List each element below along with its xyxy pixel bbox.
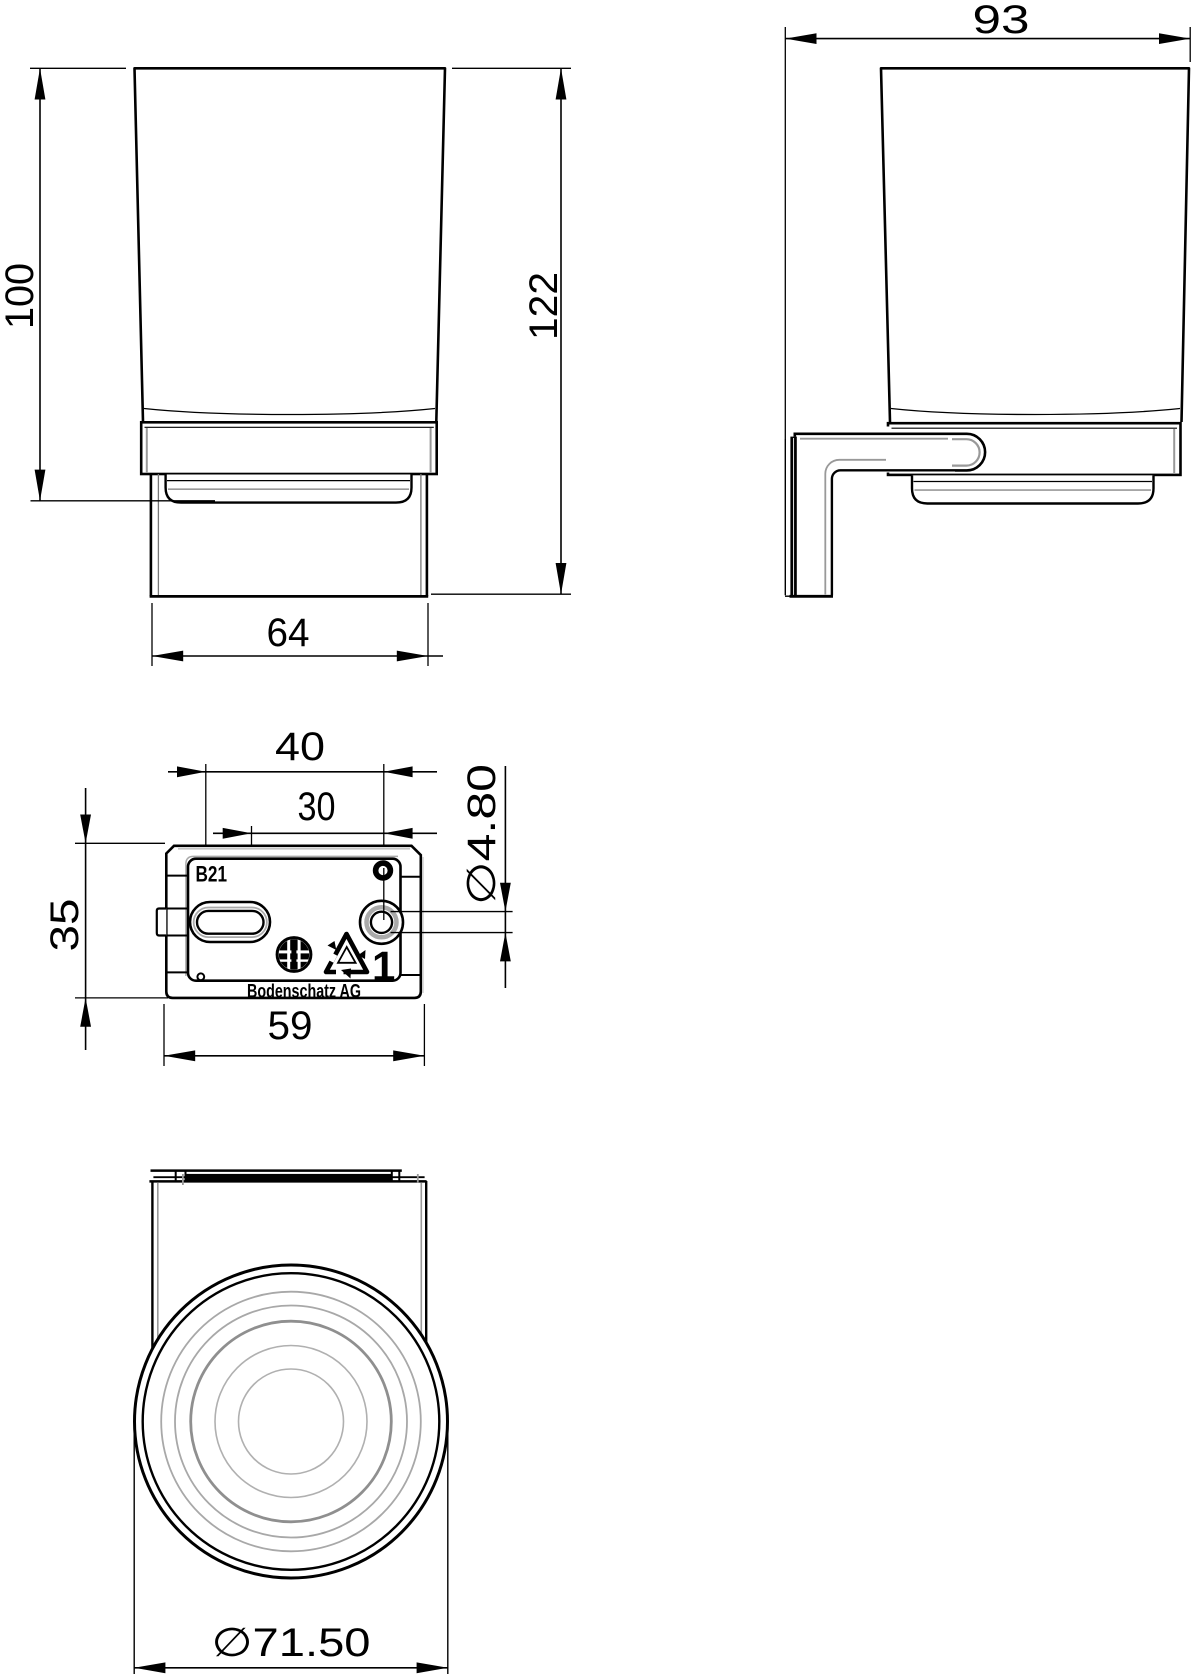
svg-text:40: 40 <box>275 725 325 769</box>
svg-text:100: 100 <box>0 263 42 329</box>
svg-text:∅71.50: ∅71.50 <box>212 1621 371 1665</box>
svg-text:30: 30 <box>298 785 336 829</box>
svg-text:Bodenschatz AG: Bodenschatz AG <box>247 982 361 1003</box>
svg-text:122: 122 <box>522 272 566 340</box>
svg-text:64: 64 <box>267 611 310 655</box>
svg-text:B21: B21 <box>196 862 228 887</box>
svg-text:35: 35 <box>43 899 87 952</box>
svg-text:1: 1 <box>372 943 395 990</box>
svg-text:59: 59 <box>268 1004 313 1048</box>
svg-text:∅4.80: ∅4.80 <box>460 764 504 905</box>
svg-text:93: 93 <box>973 0 1030 42</box>
